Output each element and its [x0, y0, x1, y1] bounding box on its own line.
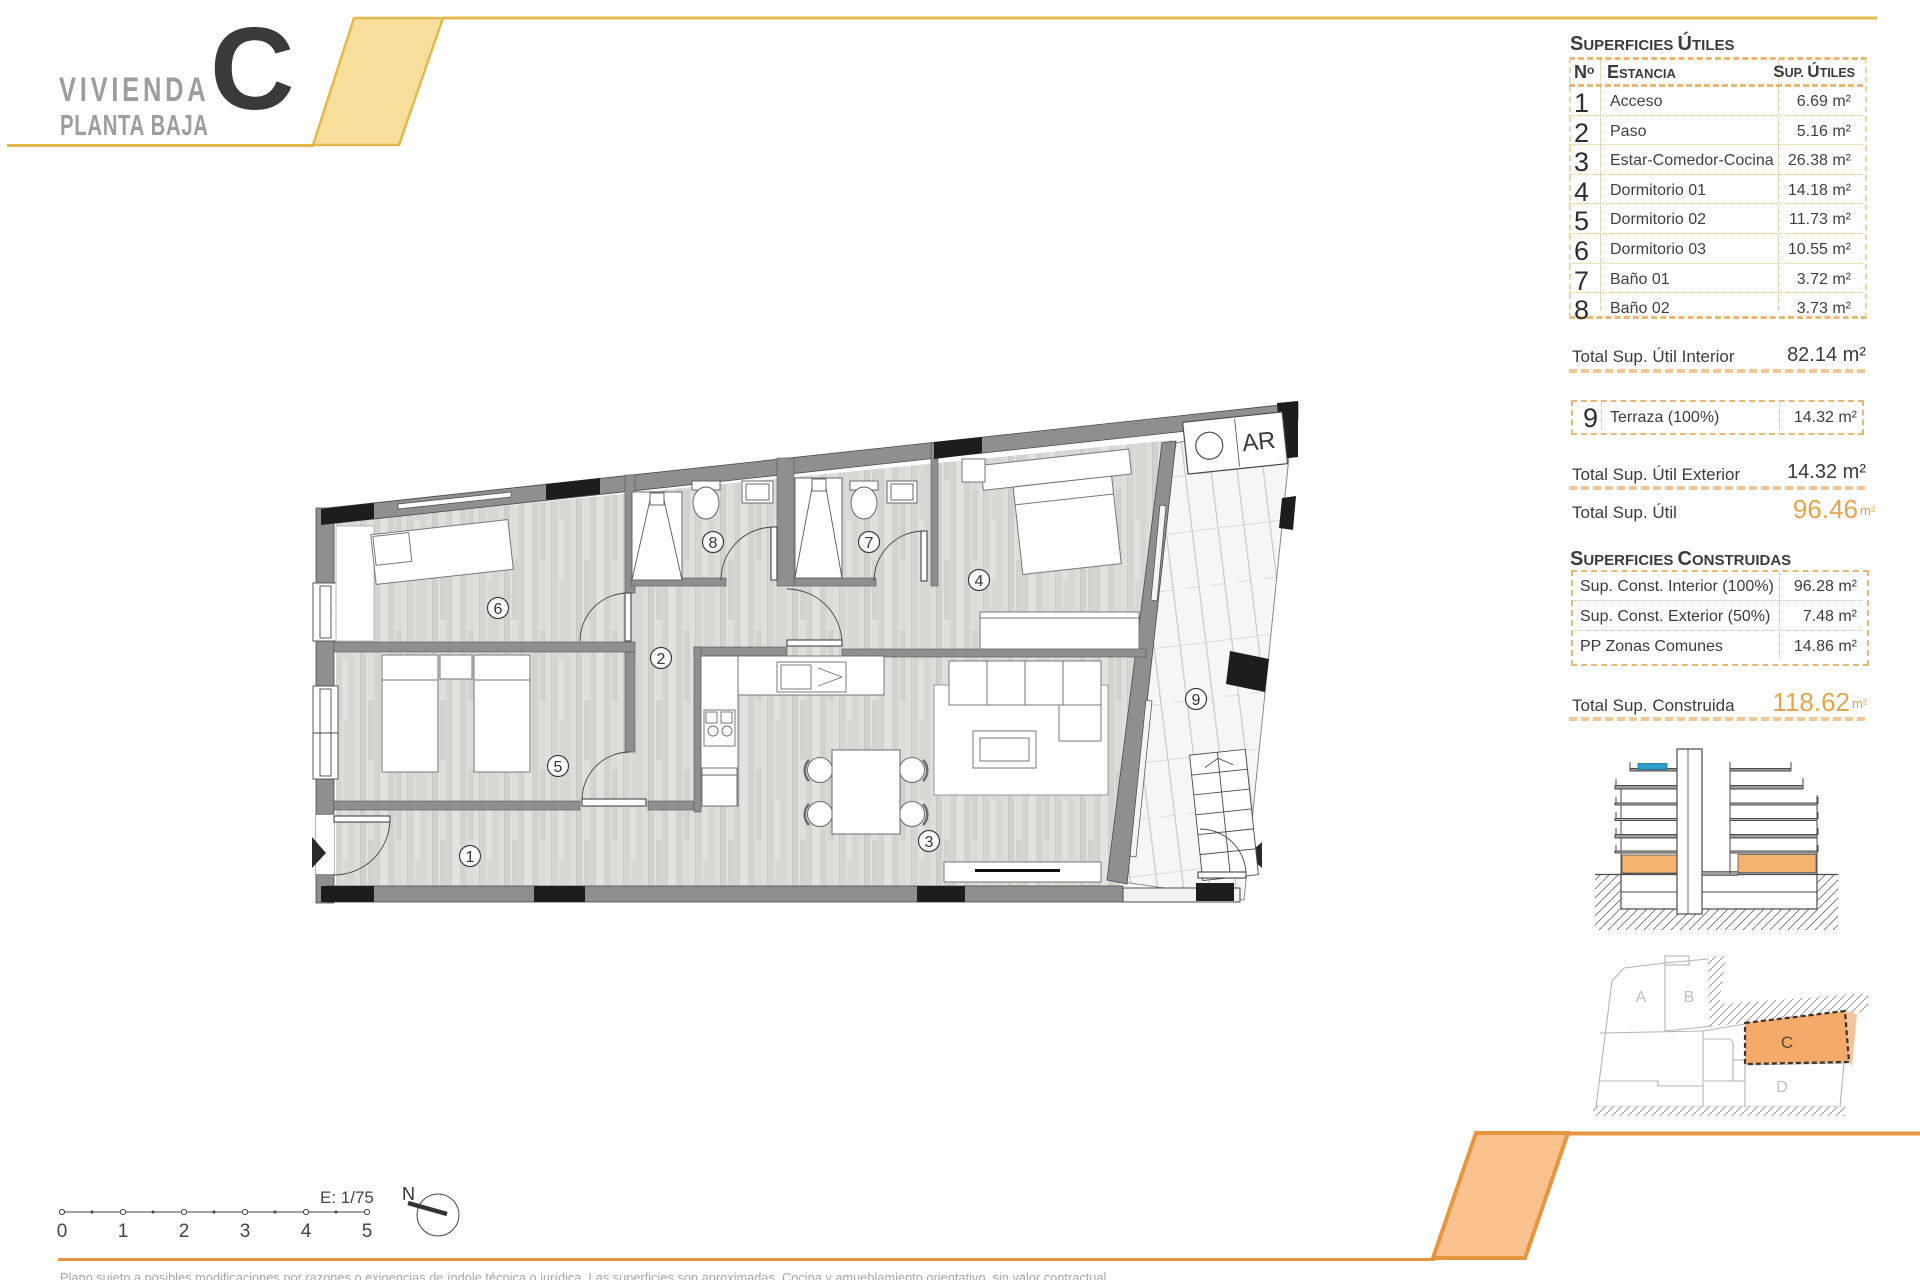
- svg-text:3: 3: [240, 1221, 251, 1242]
- svg-text:4: 4: [975, 573, 984, 590]
- svg-text:1: 1: [118, 1221, 129, 1242]
- svg-text:1: 1: [466, 849, 475, 866]
- svg-text:B: B: [1684, 989, 1695, 1006]
- svg-text:AR: AR: [1241, 427, 1277, 457]
- svg-text:6: 6: [494, 601, 503, 618]
- svg-text:D: D: [1776, 1079, 1788, 1096]
- svg-text:E: 1/75: E: 1/75: [320, 1188, 374, 1207]
- svg-text:5: 5: [362, 1221, 373, 1242]
- svg-text:4: 4: [301, 1221, 312, 1242]
- svg-text:5: 5: [554, 759, 563, 776]
- svg-text:2: 2: [179, 1221, 190, 1242]
- svg-text:N: N: [402, 1184, 415, 1204]
- svg-text:8: 8: [709, 535, 718, 552]
- svg-text:7: 7: [865, 535, 874, 552]
- svg-text:A: A: [1636, 989, 1647, 1006]
- svg-text:C: C: [1781, 1033, 1793, 1052]
- svg-text:9: 9: [1192, 692, 1201, 709]
- svg-text:0: 0: [57, 1221, 68, 1242]
- svg-text:2: 2: [657, 651, 666, 668]
- svg-text:3: 3: [925, 834, 934, 851]
